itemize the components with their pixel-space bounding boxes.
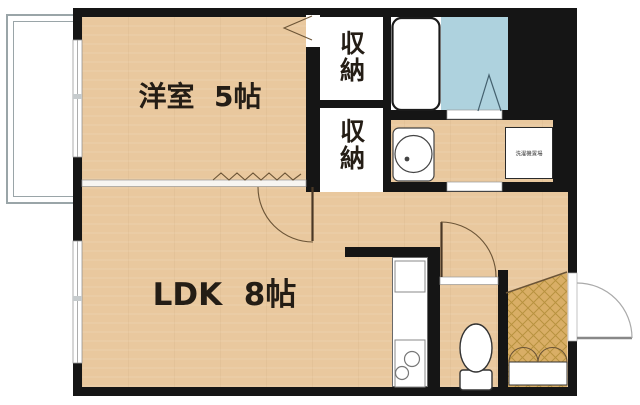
- wall-kitchen-stub: [345, 247, 440, 257]
- front-door-sill: [568, 273, 577, 341]
- wall-left-upper: [73, 8, 82, 40]
- closet-lower-label: 収納: [319, 110, 383, 180]
- wall-closet-divider: [306, 100, 391, 108]
- wall-left-lower: [73, 363, 82, 396]
- balcony-inner-line: [13, 21, 73, 197]
- wall-kitchen-toilet: [428, 247, 440, 396]
- washing-machine-space: 洗濯機置場: [505, 127, 553, 179]
- wall-genkan-left: [498, 270, 508, 396]
- pipe-space-block: [508, 8, 577, 118]
- wall-right-mid: [568, 192, 577, 273]
- wall-closet-right: [383, 8, 391, 192]
- wall-washroom-south: [383, 182, 577, 192]
- kitchen-counter: [392, 257, 428, 387]
- western-room-label: 洋室 5帖: [95, 78, 305, 116]
- ldk-label: LDK 8帖: [112, 274, 337, 316]
- window-west-room: [73, 40, 82, 157]
- washing-machine-label: 洗濯機置場: [515, 149, 542, 157]
- floor-plan-page: { "plan": { "type": "apartment-floor-pla…: [0, 0, 640, 405]
- wall-left-mid: [73, 157, 82, 241]
- bathroom-floor: [441, 17, 508, 112]
- closet-upper-label: 収納: [319, 16, 383, 98]
- window-ldk: [73, 241, 82, 363]
- wall-right-lower: [568, 341, 577, 396]
- front-door-swing-arc: [577, 283, 632, 338]
- wall-right-washer: [553, 108, 577, 192]
